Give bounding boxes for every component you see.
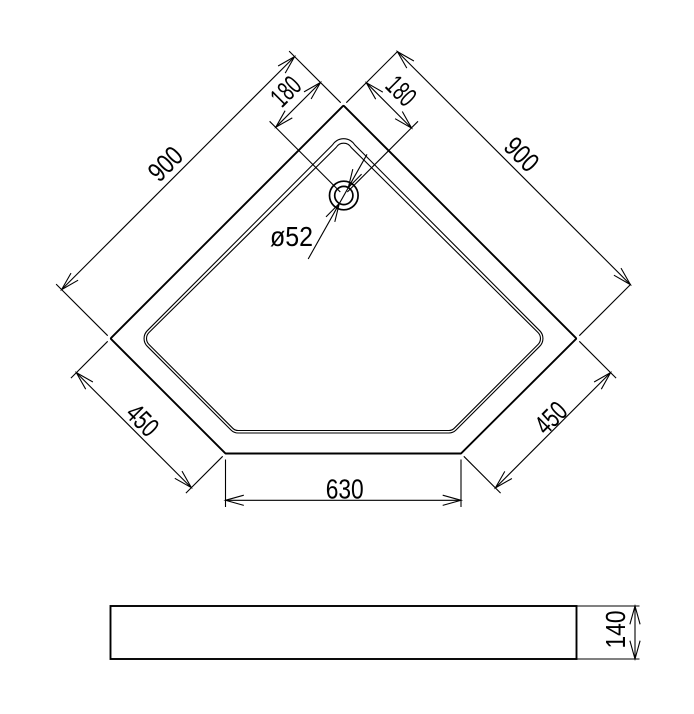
svg-text:450: 450 [120, 397, 165, 442]
svg-text:630: 630 [326, 473, 364, 504]
svg-text:140: 140 [600, 611, 631, 649]
svg-text:900: 900 [498, 131, 545, 178]
svg-text:ø52: ø52 [270, 221, 313, 252]
svg-text:900: 900 [142, 140, 189, 187]
svg-text:180: 180 [264, 70, 307, 113]
svg-text:450: 450 [528, 395, 573, 440]
svg-text:180: 180 [380, 69, 423, 112]
